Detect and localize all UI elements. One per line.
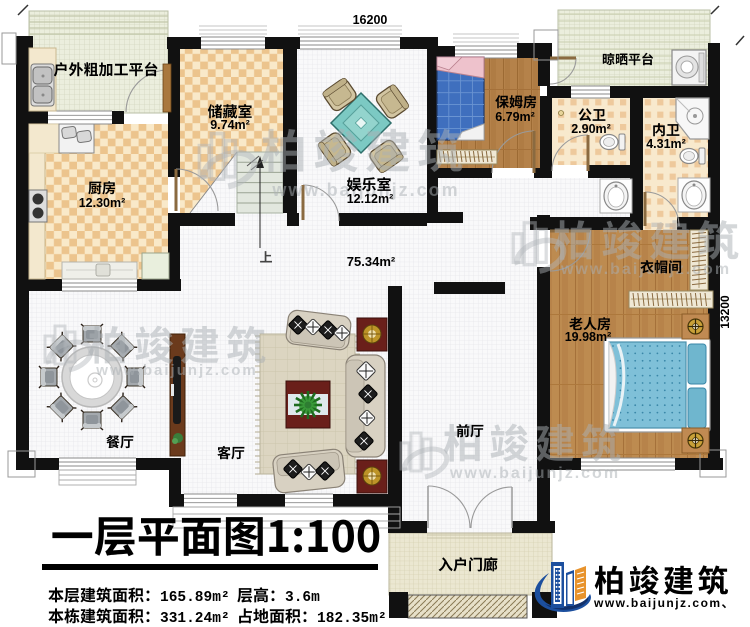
svg-text:165.89m²: 165.89m²	[160, 590, 230, 606]
svg-text:3.6m: 3.6m	[285, 590, 320, 606]
svg-text:331.24m²: 331.24m²	[160, 611, 230, 627]
svg-text:www.baijunjz.com、: www.baijunjz.com、	[593, 596, 735, 610]
svg-text:75.34m²: 75.34m²	[347, 254, 396, 269]
svg-text:www.baijunjz.com: www.baijunjz.com	[95, 362, 257, 379]
svg-text:13200: 13200	[718, 295, 732, 329]
svg-text:182.35m²: 182.35m²	[317, 611, 387, 627]
svg-text:16200: 16200	[353, 13, 388, 27]
svg-text:9.74m²: 9.74m²	[210, 118, 250, 132]
svg-text:www.baijunjz.com: www.baijunjz.com	[449, 465, 620, 482]
svg-text:6.79m²: 6.79m²	[495, 110, 535, 124]
svg-text:19.98m²: 19.98m²	[565, 330, 612, 344]
svg-text:12.30m²: 12.30m²	[79, 196, 126, 210]
svg-text:12.12m²: 12.12m²	[347, 192, 394, 206]
svg-text:4.31m²: 4.31m²	[646, 137, 686, 151]
svg-text:2.90m²: 2.90m²	[571, 122, 611, 136]
